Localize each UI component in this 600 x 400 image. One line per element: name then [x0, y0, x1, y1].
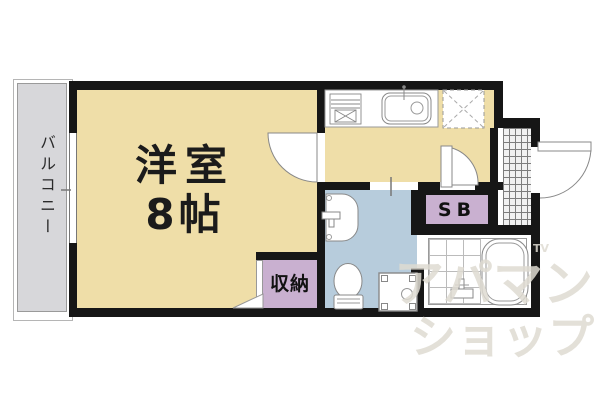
main-room-size: 8帖 — [95, 190, 275, 239]
shoe-box-label: SB — [438, 199, 476, 221]
closet-door — [256, 260, 263, 308]
wall — [317, 88, 325, 133]
bathroom-unit-border — [428, 238, 527, 305]
washroom-floor — [325, 190, 417, 308]
closet-label: 収納 — [263, 260, 317, 304]
wall — [69, 243, 77, 316]
balcony-window — [69, 133, 77, 243]
kitchen-hall-floor — [325, 85, 494, 182]
wall — [475, 182, 503, 190]
main-room-label: 洋室 8帖 — [95, 141, 275, 239]
wall — [325, 182, 370, 190]
wall — [69, 81, 77, 133]
main-room-name: 洋室 — [95, 141, 275, 190]
wall — [317, 182, 325, 308]
entrance-tile — [503, 128, 531, 225]
wall — [418, 182, 440, 190]
wall — [531, 118, 540, 147]
front-door-icon — [538, 142, 591, 198]
floor-plan: SB — [0, 0, 600, 400]
shoe-box: SB — [421, 190, 493, 229]
wall — [411, 268, 424, 316]
wall — [69, 81, 503, 90]
wall — [69, 308, 540, 317]
wall — [411, 190, 421, 235]
balcony-label: バルコニー — [34, 134, 58, 264]
wall — [531, 193, 540, 317]
wall — [256, 252, 317, 260]
